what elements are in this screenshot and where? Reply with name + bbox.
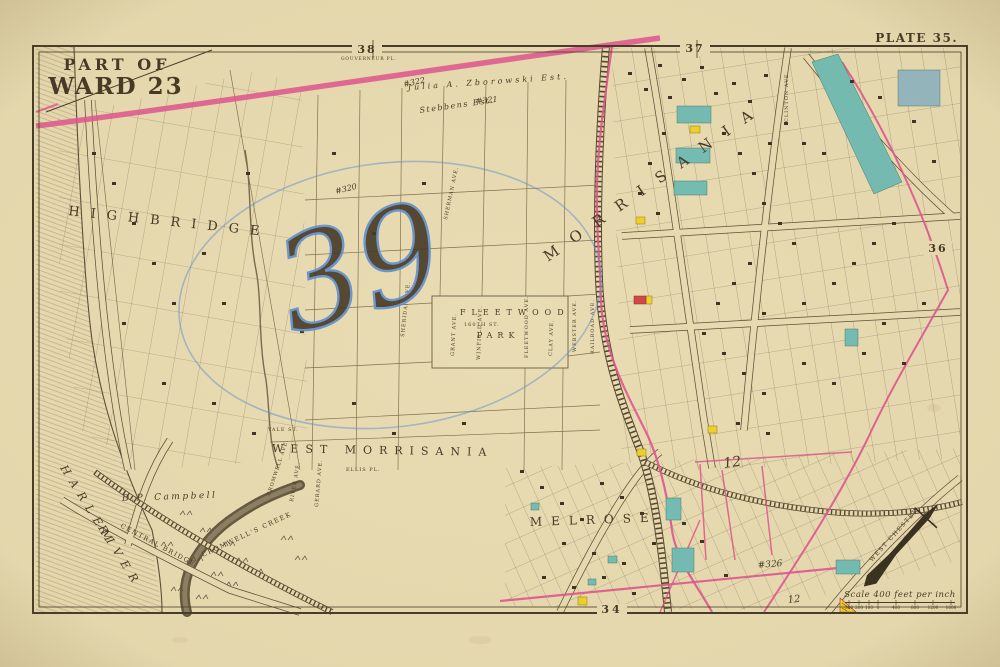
street-clay: CLAY AVE. xyxy=(548,319,555,356)
street-yale: YALE ST. xyxy=(267,427,299,433)
label-park: PARK xyxy=(477,331,519,340)
plate-label: PLATE 35. xyxy=(875,31,958,45)
street-160th: 160TH ST. xyxy=(464,322,499,328)
scale-tick-200: 200 xyxy=(855,605,863,610)
adjacent-plate-36: 36 xyxy=(928,242,947,255)
scale-tick-300: 300 xyxy=(845,605,853,610)
title-cartouche: PART OF WARD 23 xyxy=(47,55,183,100)
scale-label: Scale 400 feet per inch xyxy=(844,590,956,600)
annotation-red-12: 12 xyxy=(722,454,742,472)
scale-tick-800: 800 xyxy=(911,605,919,610)
scale-tick-100: 100 xyxy=(865,605,873,610)
adjacent-plate-37: 37 xyxy=(685,42,704,55)
scale-tick-0: 0 xyxy=(877,605,880,610)
street-clinton: CLINTON AVE. xyxy=(784,71,790,122)
adjacent-plate-34: 34 xyxy=(601,603,622,616)
annotation-purple-12: 12 xyxy=(787,594,801,606)
scale-tick-1200: 1200 xyxy=(928,605,939,610)
scale-tick-400: 400 xyxy=(892,605,900,610)
title-ward-23: WARD 23 xyxy=(47,73,183,100)
street-fleetwood-ave: FLEETWOOD AVE. xyxy=(524,295,530,358)
title-part-of: PART OF xyxy=(63,55,170,74)
street-ellis: ELLIS PL. xyxy=(346,467,381,473)
label-fleetwood: FLEETWOOD xyxy=(460,308,570,317)
atlas-map-page: 38 37 36 34 PLATE 35. PART OF WARD 23 HI… xyxy=(0,0,1000,667)
street-gouverneur: GOUVERNEUR PL. xyxy=(341,56,396,62)
scale-tick-1600: 1600 xyxy=(946,605,957,610)
adjacent-plate-38: 38 xyxy=(357,43,376,56)
red-building xyxy=(634,296,646,304)
street-railroad: RAILROAD AVE. xyxy=(590,299,596,354)
